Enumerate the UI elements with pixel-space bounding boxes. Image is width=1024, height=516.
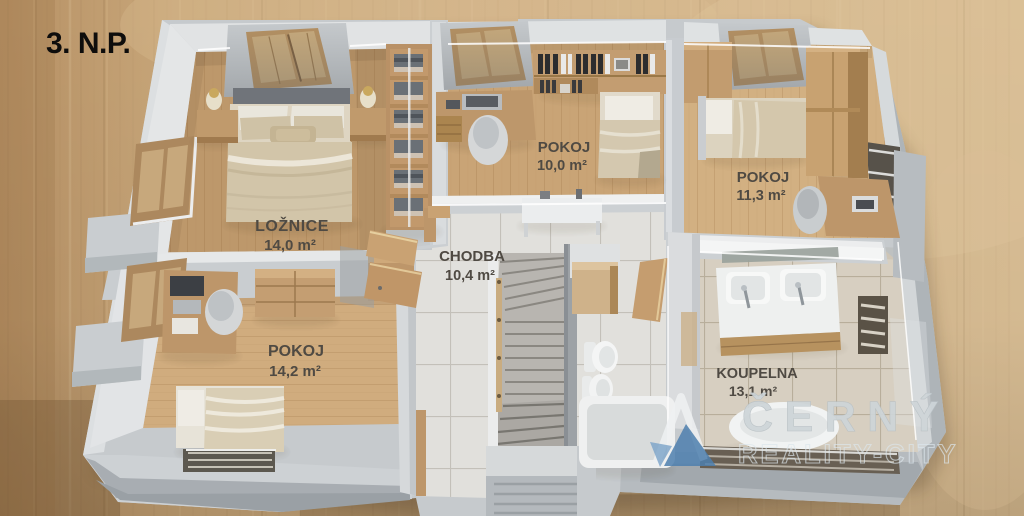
svg-text:ČERNÝ: ČERNÝ [742,392,950,441]
svg-text:POKOJ: POKOJ [737,169,790,186]
svg-text:LOŽNICE: LOŽNICE [255,216,329,235]
svg-text:CHODBA: CHODBA [439,248,505,265]
svg-text:14,0 m²: 14,0 m² [264,237,316,254]
svg-text:KOUPELNA: KOUPELNA [716,366,798,382]
svg-text:POKOJ: POKOJ [268,343,324,360]
svg-text:REALITY-CITY: REALITY-CITY [738,439,959,469]
svg-text:10,0 m²: 10,0 m² [537,158,587,174]
svg-text:10,4 m²: 10,4 m² [445,268,495,284]
svg-text:11,3 m²: 11,3 m² [736,188,785,204]
svg-text:POKOJ: POKOJ [538,139,591,156]
svg-text:3. N.P.: 3. N.P. [46,27,130,60]
svg-text:14,2 m²: 14,2 m² [269,363,321,380]
